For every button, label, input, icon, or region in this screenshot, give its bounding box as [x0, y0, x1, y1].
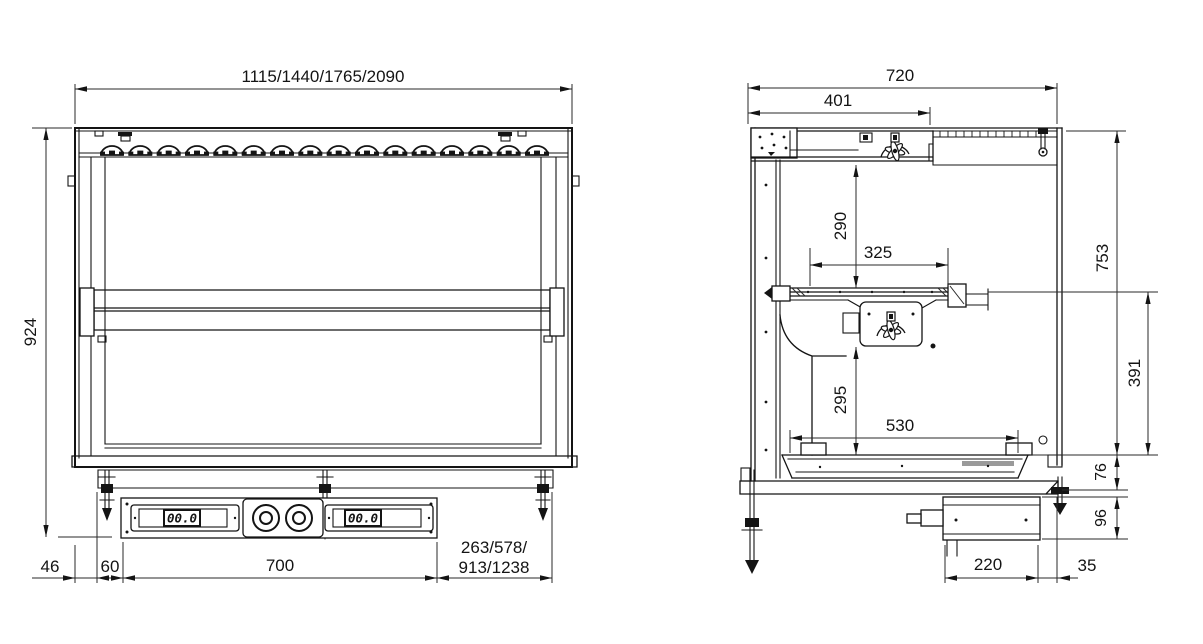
side-bolt-back: [742, 470, 762, 574]
dim-control-box-depth: 220: [974, 555, 1002, 574]
display-left-value: 00.0: [167, 511, 197, 526]
knob-panel: [243, 499, 323, 537]
dim-top-clearance: 290: [831, 212, 850, 240]
dim-well-depth: 530: [886, 416, 914, 435]
glass-hook: [1038, 128, 1048, 156]
control-panel: 00.0 00.0: [121, 498, 437, 538]
front-glass-panel: [1057, 128, 1062, 465]
bottom-tray: [782, 443, 1032, 478]
control-knob-right[interactable]: [286, 505, 312, 531]
temperature-display-left: 00.0: [131, 505, 239, 531]
dim-bracket-gap: 60: [101, 557, 120, 576]
front-view: 00.0 00.0: [21, 67, 579, 583]
control-knob-left[interactable]: [253, 505, 279, 531]
dim-lower-clearance: 391: [1125, 359, 1144, 387]
dim-glass-height: 753: [1093, 244, 1112, 272]
side-shelf: [764, 284, 988, 455]
canopy-rail: [933, 128, 1057, 165]
display-right-value: 00.0: [348, 511, 378, 526]
right-edge-bracket: [572, 176, 579, 186]
dim-right-offset-line2: 913/1238: [459, 558, 530, 577]
dim-overall-height: 924: [21, 318, 40, 346]
dim-right-offset-line1: 263/578/: [461, 538, 527, 557]
middle-shelf: [80, 288, 564, 342]
dim-overall-widths: 1115/1440/1765/2090: [242, 67, 405, 86]
dim-control-panel-width: 700: [266, 556, 294, 575]
dim-control-box-offset: 35: [1078, 556, 1097, 575]
side-view: 720 401 290 325 295 753 391 530 76 96 22…: [740, 66, 1158, 583]
canopy-clips: [95, 131, 526, 141]
hanging-bolt-left: [99, 470, 115, 521]
side-control-box: [907, 497, 1040, 556]
side-body: [740, 128, 1069, 574]
dim-top-unit-depth: 401: [824, 91, 852, 110]
screw-hole: [1039, 436, 1047, 444]
display-case-drawing: 00.0 00.0: [0, 0, 1203, 644]
dim-control-box-height: 96: [1093, 509, 1110, 527]
dim-shelf-depth: 325: [864, 243, 892, 262]
side-bolt-front: [1051, 477, 1069, 515]
front-cabinet-body: [68, 128, 579, 488]
technical-drawing-canvas: 00.0 00.0: [0, 0, 1203, 644]
dim-left-offset: 46: [41, 557, 60, 576]
shelf-fan-housing: [843, 302, 936, 349]
left-edge-bracket: [68, 176, 75, 186]
dim-overall-depth: 720: [886, 66, 914, 85]
temperature-display-right: 00.0: [325, 505, 433, 531]
canopy-louvers: [100, 146, 549, 155]
dim-under-shelf-clearance: 295: [831, 386, 850, 414]
dim-base-frame-height: 76: [1093, 463, 1110, 481]
hanging-bolt-right: [535, 470, 551, 521]
